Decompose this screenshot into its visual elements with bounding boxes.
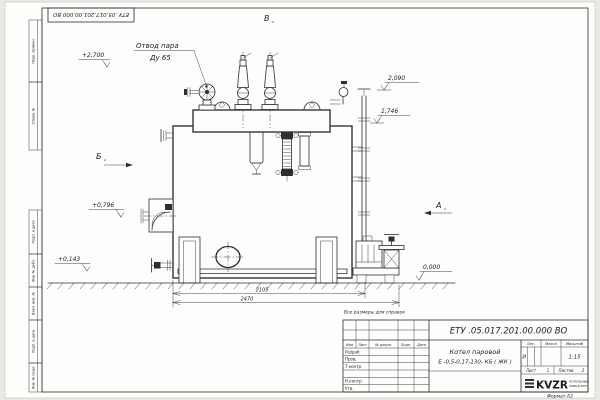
tb-row-utv: Утв. — [345, 386, 353, 391]
callout-line1: Отвод пара — [136, 42, 179, 50]
level-0796-value: +0,796 — [92, 202, 114, 209]
view-top-letter: В — [264, 14, 270, 23]
level-0000-value: 0,000 — [423, 264, 440, 271]
tb-logo-sub1: КОТЕЛЬНЫЙ — [569, 379, 589, 384]
margin-label-perv-primen: Перв. примен. — [32, 38, 36, 63]
tb-col-podp: Подп. — [401, 343, 411, 347]
view-left-letter: Б — [96, 152, 102, 161]
callout-line2: Ду 65 — [149, 54, 171, 62]
tb-sheet-label: Лист — [525, 368, 537, 373]
tb-row-razrab: Разраб. — [345, 349, 361, 354]
tb-lit-label: Лит. — [526, 342, 535, 346]
tb-scale-label: Масштаб — [566, 342, 584, 346]
support-leg-right — [316, 237, 337, 283]
reference-note: Все размеры для справок — [344, 310, 405, 316]
view-left-sheet-ref: 2 — [104, 158, 106, 162]
tb-designation: ЕТУ .05.017.201.00.000 ВО — [450, 327, 568, 337]
level-0143-value: +0,143 — [58, 256, 80, 263]
tb-row-tkontr: Т.контр. — [345, 364, 362, 369]
level-2090-value: 2,090 — [388, 75, 405, 82]
level-2700-value: +2,700 — [82, 52, 104, 59]
tb-scale-value: 1:15 — [568, 355, 581, 361]
tb-product-name-2: Е -0,5-0,17-130- КБ ( ЖК ) — [438, 360, 511, 366]
format-label: Формат А3 — [547, 394, 573, 400]
view-right-letter: А — [435, 201, 441, 210]
tb-col-list: Лист — [357, 343, 368, 347]
tb-logo-text: KVZR — [536, 380, 568, 392]
margin-label-inv-podl: Инв. № подл. — [32, 366, 36, 389]
tb-col-izm: Изм — [346, 343, 353, 347]
tb-row-nkontr: Н.контр. — [345, 379, 363, 384]
stamp-designation: ЕТУ .05.017.201.00.000 ВО — [52, 11, 129, 17]
tb-col-data: Дата — [416, 343, 426, 347]
view-top-sheet-ref: 2 — [272, 20, 274, 24]
dim-inner-value: 2105 — [256, 288, 269, 294]
margin-label-vzam-inv: Взам. инв. № — [32, 292, 36, 315]
tb-logo-sub2: ЗАВОД РЭП — [569, 384, 587, 388]
margin-label-inv-dubl: Инв. № дубл. — [32, 259, 36, 282]
tb-sheet-value: 1 — [547, 368, 550, 373]
boiler-drawing-sheet: Перв. примен. Справ. № Подп. и дата Инв.… — [0, 0, 600, 400]
logo-waves-icon — [525, 379, 534, 381]
tb-mass-label: Масса — [545, 342, 556, 346]
tb-sheets-value: 2 — [582, 368, 585, 373]
support-leg-left — [179, 237, 200, 283]
tb-row-prov: Пров. — [345, 357, 357, 362]
tb-lit-value: И — [522, 355, 526, 361]
tb-product-name-1: Котел паровой — [450, 348, 501, 356]
margin-label-sprav-no: Справ. № — [32, 107, 36, 124]
margin-label-podp-data-2: Подп. и дата — [32, 330, 36, 353]
drawing-sheet-photo: Перв. примен. Справ. № Подп. и дата Инв.… — [0, 0, 600, 400]
margin-label-podp-data-1: Подп. и дата — [32, 220, 36, 243]
view-right-sheet-ref: 2 — [444, 207, 446, 211]
tb-sheets-label: Листов — [558, 368, 575, 373]
level-1746-value: 1,746 — [381, 108, 398, 115]
dim-overall-value: 2470 — [241, 297, 254, 303]
tb-col-docnum: № докум. — [374, 343, 392, 347]
